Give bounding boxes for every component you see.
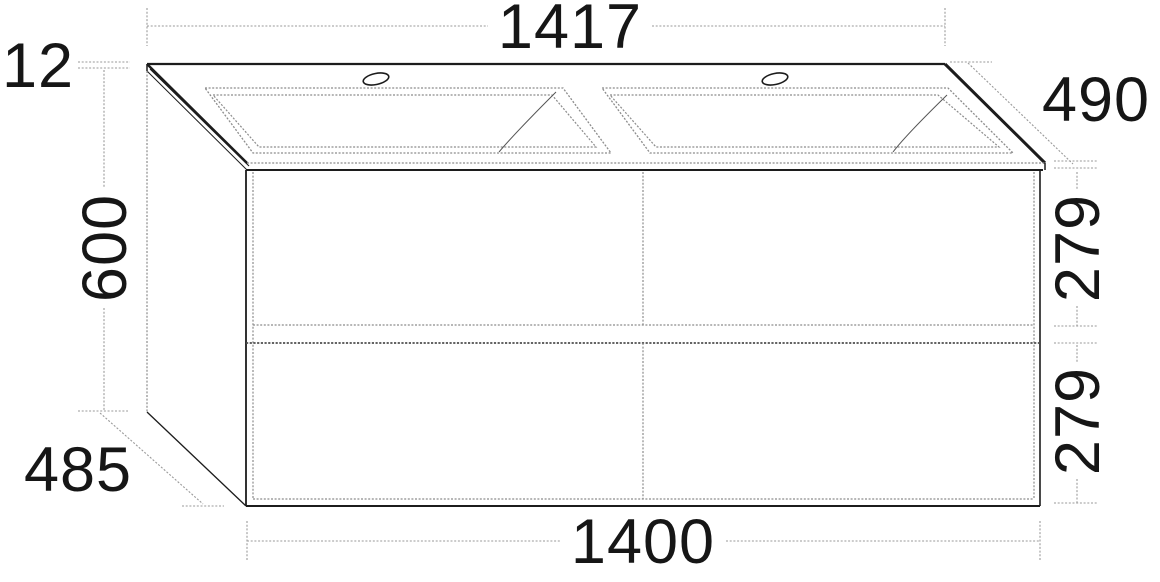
top-left-edge-inner xyxy=(150,69,249,166)
dim-cabinet-width: 1400 xyxy=(247,507,1040,577)
dim-lower-drawer: 279 xyxy=(1043,343,1113,503)
dim-top-thickness: 12 xyxy=(2,31,130,101)
cabinet-front xyxy=(246,170,1040,506)
vanity-technical-drawing: 1417 12 490 600 279 279 48 xyxy=(0,0,1160,582)
right-basin-rim-outer xyxy=(602,88,1013,153)
left-basin-rim-inner xyxy=(213,95,596,147)
dim-279-lower-label: 279 xyxy=(1043,367,1113,475)
dim-12-label: 12 xyxy=(2,31,74,101)
right-basin-bowl-curve xyxy=(893,95,947,152)
dim-cabinet-depth: 485 xyxy=(24,413,224,506)
dim-279-upper-label: 279 xyxy=(1043,194,1113,302)
dim-600-label: 600 xyxy=(70,194,140,302)
drawing-canvas: 1417 12 490 600 279 279 48 xyxy=(0,0,1160,582)
dim-height: 600 xyxy=(70,70,140,411)
dim-top-depth: 490 xyxy=(950,62,1150,168)
top-left-edge xyxy=(147,64,247,163)
washbasin-top xyxy=(147,64,1045,170)
dim-upper-drawer: 279 xyxy=(1043,172,1113,326)
left-basin-bowl-curve xyxy=(499,92,556,152)
dim-1417-label: 1417 xyxy=(498,0,642,62)
right-faucet-hole xyxy=(761,71,789,87)
right-basin xyxy=(602,71,1013,153)
dim-485-label: 485 xyxy=(24,435,132,505)
side-panel-bottom-edge xyxy=(147,412,246,506)
left-basin xyxy=(205,71,611,153)
top-left-bottom-edge xyxy=(147,71,247,170)
right-basin-rim-inner xyxy=(610,95,999,147)
dim-top-width: 1417 xyxy=(147,0,945,62)
dim-1400-label: 1400 xyxy=(571,507,715,577)
dim-490-label: 490 xyxy=(1042,65,1150,135)
side-panel xyxy=(147,71,246,506)
left-faucet-hole xyxy=(362,71,390,87)
